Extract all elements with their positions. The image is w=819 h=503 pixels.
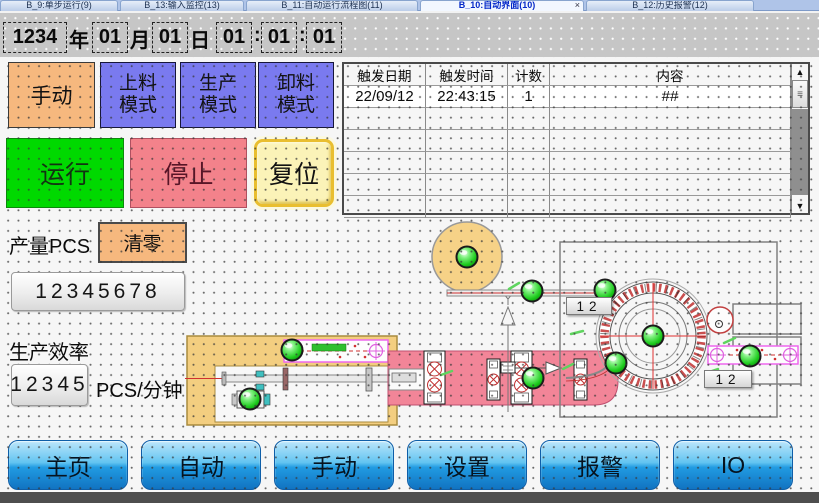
efficiency-label: 生产效率 [9,336,89,365]
col-header: 计数 [508,64,550,86]
nav-auto-button[interactable]: 自动 [141,440,261,490]
button-label: 生产 [199,73,237,95]
table-row [344,108,791,130]
cell-trigger-time: 22:43:15 [426,86,508,108]
reset-button[interactable]: 复位 [254,139,334,207]
button-label: 手动 [31,80,73,110]
indicator-lamp [282,340,303,361]
manual-mode-button[interactable]: 手动 [8,62,95,128]
clear-count-button[interactable]: 清零 [98,222,187,263]
counter-display: 12 [566,297,612,315]
tab-b13[interactable]: B_13:输入监控(13) [120,0,244,11]
scrollbar-track[interactable] [792,109,808,195]
table-scrollbar[interactable]: ▲ ≡ ▼ [791,64,808,213]
tab-label: B_13:输入监控(13) [121,0,243,11]
tab-bar: B_9:单步运行(9) B_13:输入监控(13) B_11:自动运行流程图(1… [0,0,819,11]
tab-b12[interactable]: B_12:历史报警(12) [586,0,754,11]
roller-station [424,351,445,404]
idler-wheel [707,307,733,333]
table-row [344,130,791,152]
time-colon: : [254,24,261,47]
run-button[interactable]: 运行 [6,138,124,208]
tab-label: B_11:自动运行流程图(11) [247,0,417,11]
year-display[interactable]: 1234 [3,22,67,53]
alarm-history-table: 触发日期 触发时间 计数 内容 22/09/12 22:43:15 1 ## ▲… [342,62,810,215]
datetime-band: 1234 年 01 月 01 日 01 : 01 : 01 [0,13,819,57]
outfeed-upper-box [733,304,801,334]
counter-display: 12 [704,370,752,388]
month-label: 月 [130,24,150,53]
nav-io-button[interactable]: IO [673,440,793,490]
cell-trigger-date: 22/09/12 [344,86,426,108]
output-count-display: 12345678 [11,272,185,311]
scroll-down-icon[interactable]: ▼ [792,198,808,213]
output-count-label: 产量PCS [9,230,90,259]
indicator-lamp [522,281,543,302]
table-row [344,174,791,196]
tab-b10-active[interactable]: B_10:自动界面(10) × [420,0,584,11]
nav-alarm-button[interactable]: 报警 [540,440,660,490]
machine-diagram [185,218,817,436]
scrollbar-thumb[interactable]: ≡ [792,80,808,108]
hour-display[interactable]: 01 [216,22,252,53]
nav-settings-button[interactable]: 设置 [407,440,527,490]
day-display[interactable]: 01 [152,22,188,53]
tab-b9[interactable]: B_9:单步运行(9) [0,0,118,11]
indicator-lamp [457,247,478,268]
col-header: 触发日期 [344,64,426,86]
table-row [344,152,791,174]
cell-count: 1 [508,86,550,108]
tab-label: B_9:单步运行(9) [1,0,117,11]
table-row: 22/09/12 22:43:15 1 ## [344,86,791,108]
month-display[interactable]: 01 [92,22,128,53]
tab-b11[interactable]: B_11:自动运行流程图(11) [246,0,418,11]
hmi-screen: B_9:单步运行(9) B_13:输入监控(13) B_11:自动运行流程图(1… [0,0,819,503]
table-row [344,196,791,218]
time-colon: : [299,24,306,47]
col-header: 触发时间 [426,64,508,86]
col-header: 内容 [550,64,791,86]
year-label: 年 [69,24,89,53]
minute-display[interactable]: 01 [261,22,297,53]
nav-home-button[interactable]: 主页 [8,440,128,490]
tab-separator [0,11,819,13]
button-label: 模式 [277,95,315,117]
unload-mode-button[interactable]: 卸料 模式 [258,62,334,128]
bottom-strip [0,492,819,503]
button-label: 模式 [199,95,237,117]
stop-button[interactable]: 停止 [130,138,247,208]
tab-label: B_12:历史报警(12) [587,0,753,11]
scroll-up-icon[interactable]: ▲ [792,64,808,79]
indicator-lamp [643,326,664,347]
cell-content: ## [550,86,791,108]
production-mode-button[interactable]: 生产 模式 [180,62,256,128]
efficiency-unit-label: PCS/分钟 [96,374,183,403]
button-label: 卸料 [277,73,315,95]
indicator-lamp [240,389,261,410]
close-icon[interactable]: × [575,0,580,10]
tab-label: B_10:自动界面(10) [421,0,573,11]
nav-manual-button[interactable]: 手动 [274,440,394,490]
day-label: 日 [190,24,210,53]
indicator-lamp [523,368,544,389]
indicator-lamp [606,353,627,374]
indicator-lamp [740,346,761,367]
roller-station [487,359,500,400]
second-display[interactable]: 01 [306,22,342,53]
button-label: 上料 [119,73,157,95]
button-label: 模式 [119,95,157,117]
table-header-row: 触发日期 触发时间 计数 内容 [344,64,791,86]
load-mode-button[interactable]: 上料 模式 [100,62,176,128]
efficiency-display: 12345 [11,364,88,406]
